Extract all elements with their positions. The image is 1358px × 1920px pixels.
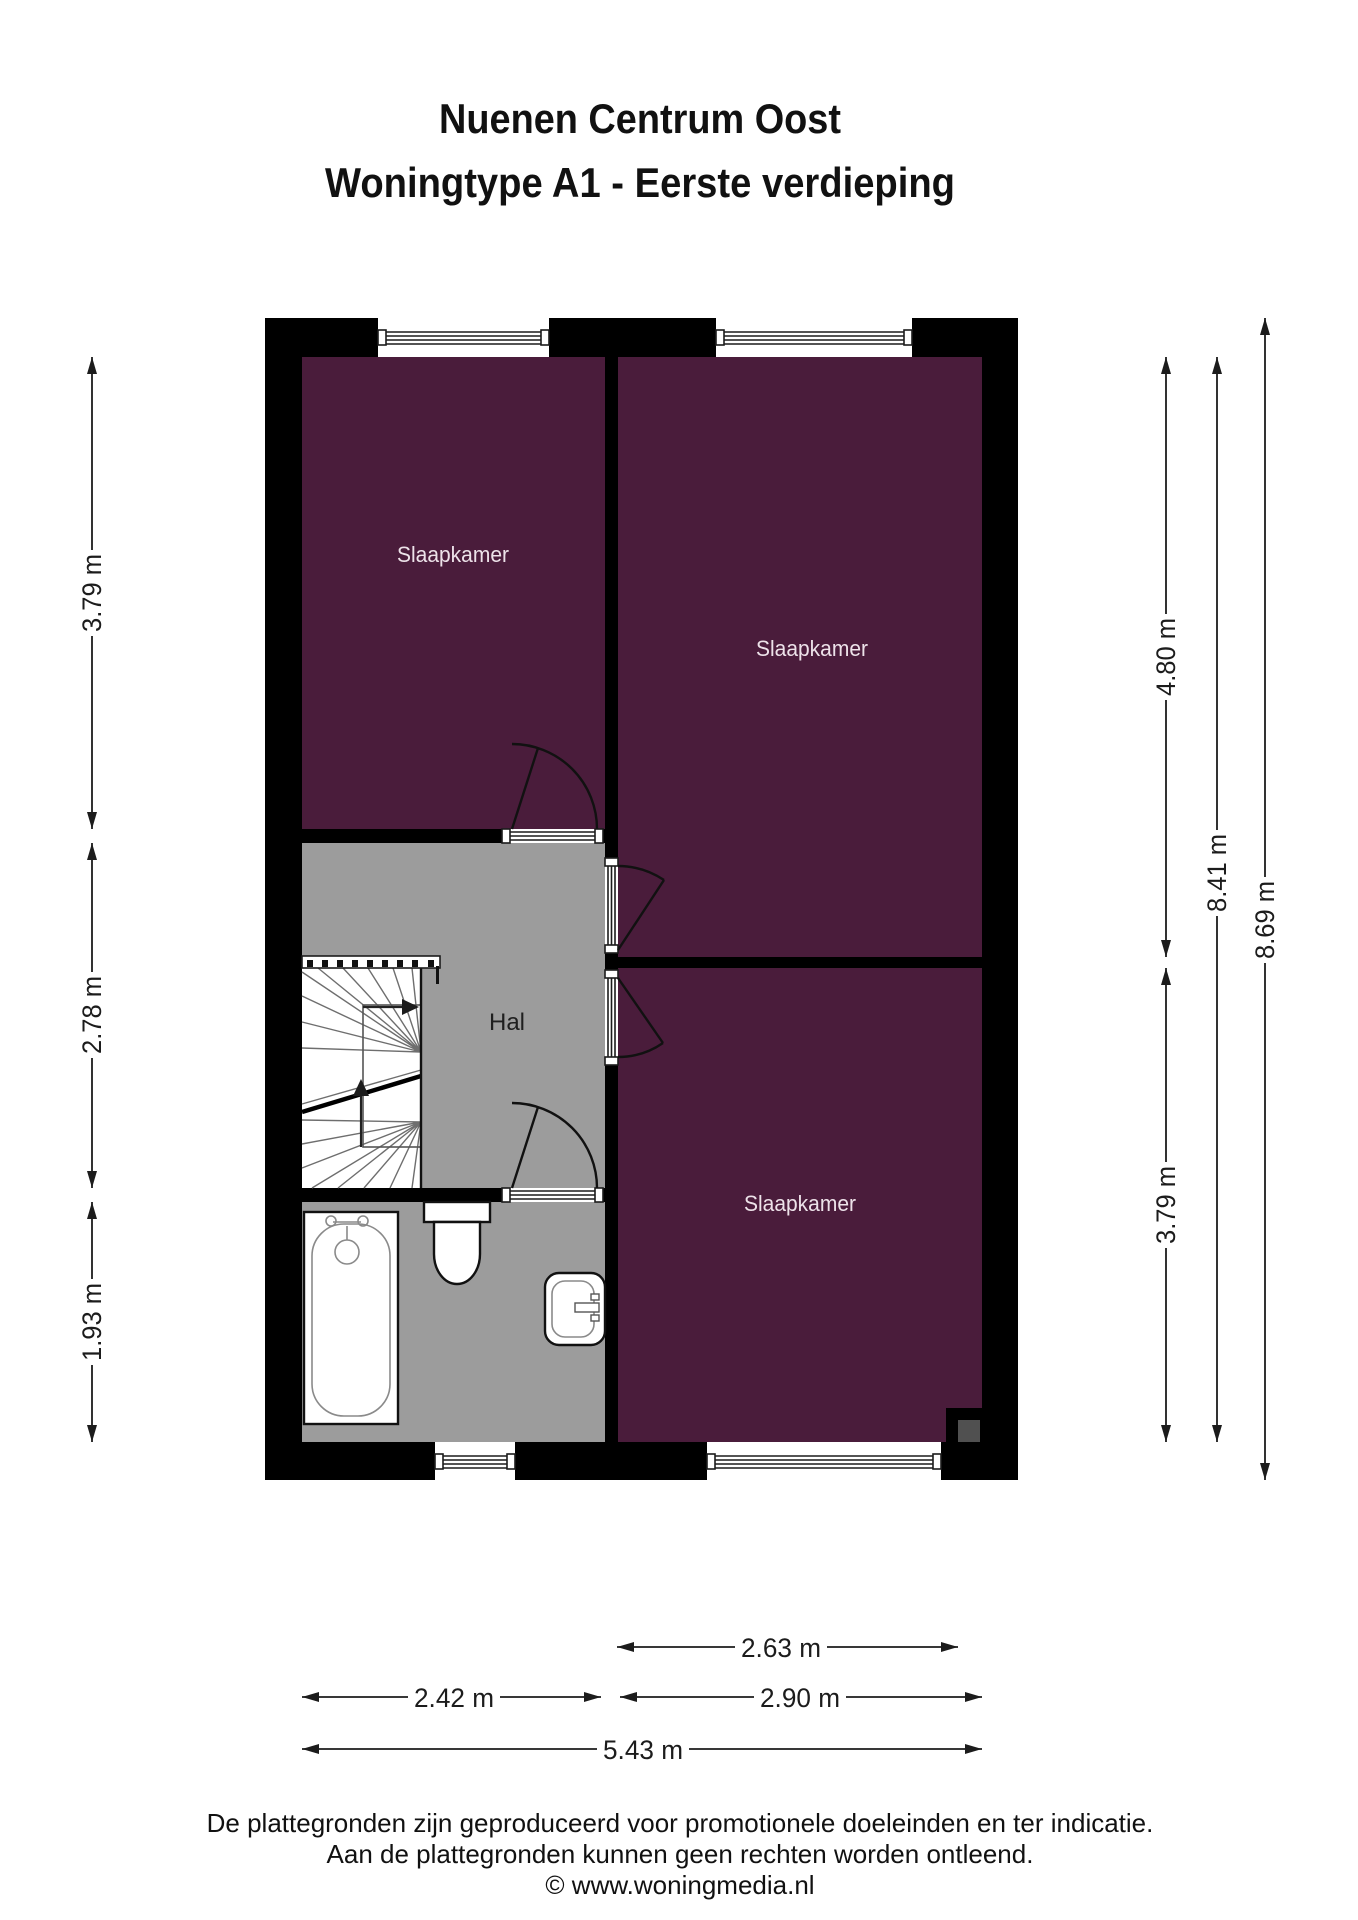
dimension-right-8-41: 8.41 m bbox=[1202, 357, 1232, 1442]
svg-text:2.63 m: 2.63 m bbox=[741, 1633, 821, 1663]
svg-text:1.93 m: 1.93 m bbox=[77, 1283, 107, 1361]
staircase bbox=[302, 956, 440, 1188]
svg-text:2.78 m: 2.78 m bbox=[77, 976, 107, 1054]
window-bottom-left bbox=[435, 1442, 515, 1480]
svg-text:2.90 m: 2.90 m bbox=[760, 1683, 840, 1713]
window-top-right bbox=[716, 318, 912, 357]
window-top-left bbox=[378, 318, 549, 357]
svg-text:2.42 m: 2.42 m bbox=[414, 1683, 494, 1713]
dimension-left-3-79: 3.79 m bbox=[77, 357, 107, 829]
washbasin bbox=[545, 1273, 605, 1345]
dimension-left-1-93: 1.93 m bbox=[77, 1202, 107, 1442]
svg-text:8.41 m: 8.41 m bbox=[1202, 834, 1232, 912]
floor-plan: Nuenen Centrum Oost Woningtype A1 - Eers… bbox=[0, 0, 1358, 1920]
dimension-right-3-79: 3.79 m bbox=[1151, 968, 1181, 1442]
dimension-right-4-80: 4.80 m bbox=[1151, 357, 1181, 957]
svg-text:3.79 m: 3.79 m bbox=[1151, 1166, 1181, 1244]
svg-text:3.79 m: 3.79 m bbox=[77, 554, 107, 632]
svg-text:5.43 m: 5.43 m bbox=[603, 1735, 683, 1765]
plan-title-line2: Woningtype A1 - Eerste verdieping bbox=[325, 159, 955, 206]
dimension-bottom-5-43: 5.43 m bbox=[302, 1735, 982, 1765]
disclaimer-line2: Aan de plattegronden kunnen geen rechten… bbox=[327, 1839, 1034, 1869]
floorplan-page: Nuenen Centrum Oost Woningtype A1 - Eers… bbox=[0, 0, 1358, 1920]
disclaimer-line1: De plattegronden zijn geproduceerd voor … bbox=[207, 1808, 1154, 1838]
svg-text:4.80 m: 4.80 m bbox=[1151, 618, 1181, 696]
svg-text:8.69 m: 8.69 m bbox=[1250, 881, 1280, 959]
window-bottom-right bbox=[707, 1442, 941, 1480]
bedroom-top-right-label: Slaapkamer bbox=[756, 636, 868, 661]
bedroom-top-left-label: Slaapkamer bbox=[397, 542, 509, 567]
dimension-bottom-2-42: 2.42 m bbox=[302, 1683, 601, 1713]
dimension-bottom-2-90: 2.90 m bbox=[620, 1683, 982, 1713]
plan-title-line1: Nuenen Centrum Oost bbox=[439, 95, 841, 142]
hall-label: Hal bbox=[489, 1009, 525, 1036]
dimension-bottom-2-63: 2.63 m bbox=[617, 1633, 958, 1663]
dimension-right-8-69: 8.69 m bbox=[1250, 318, 1280, 1480]
bedroom-bottom-right-label: Slaapkamer bbox=[744, 1191, 856, 1216]
shaft bbox=[946, 1408, 982, 1442]
bathtub bbox=[304, 1212, 398, 1424]
copyright-line: © www.woningmedia.nl bbox=[545, 1870, 814, 1900]
dimension-left-2-78: 2.78 m bbox=[77, 843, 107, 1188]
